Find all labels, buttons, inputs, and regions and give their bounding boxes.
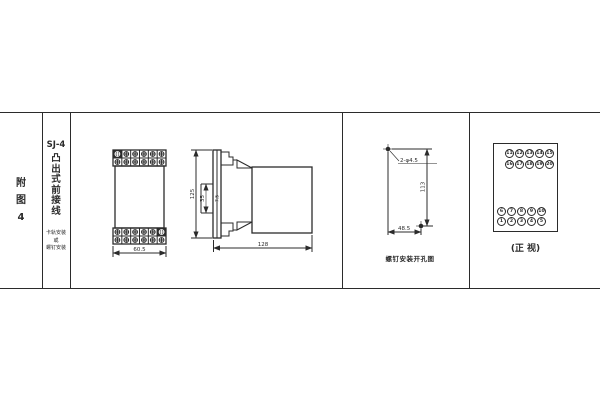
terminal-number: 4 — [527, 217, 536, 226]
side-view-drawing: 125 35 7.5 — [183, 138, 323, 263]
terminal-number: 17 — [515, 160, 524, 169]
side-bottom-tab — [221, 222, 252, 236]
divider-drill-section — [342, 112, 343, 288]
figure-number-char: 4 — [16, 209, 26, 226]
front-bottom-terminal-block — [113, 228, 166, 244]
terminal-row-11-15: 1112131415 — [505, 149, 554, 158]
front-body — [115, 166, 164, 228]
terminal-view-box: 1112131415 1617181920 678910 12345 — [493, 143, 558, 232]
drawing-title-char: 接 — [51, 196, 61, 207]
drill-hole-callout: 2-φ4.5 — [390, 151, 437, 164]
title-cell: SJ-4 凸出式前接线 卡轨安装或螺钉安装 — [42, 112, 70, 288]
drawing-title-char: 线 — [51, 207, 61, 218]
side-body — [252, 167, 312, 233]
front-width-dimension: 60.5 — [113, 246, 166, 257]
drill-horizontal-dimension: 48.5 — [388, 152, 421, 235]
terminal-number: 13 — [525, 149, 534, 158]
svg-text:125: 125 — [190, 188, 196, 199]
terminal-rows-top: 1112131415 1617181920 — [505, 149, 554, 169]
terminal-number: 5 — [537, 217, 546, 226]
terminal-number: 1 — [497, 217, 506, 226]
terminal-number: 12 — [515, 149, 524, 158]
front-top-terminal-block — [113, 150, 166, 166]
terminal-number: 3 — [517, 217, 526, 226]
terminal-number: 20 — [545, 160, 554, 169]
mount-note-line: 或 — [46, 238, 66, 246]
mount-note: 卡轨安装或螺钉安装 — [46, 230, 66, 253]
terminal-number: 7 — [507, 207, 516, 216]
mount-note-line: 卡轨安装 — [46, 230, 66, 238]
terminal-number: 9 — [527, 207, 536, 216]
figure-number: 附图4 — [16, 175, 26, 226]
svg-text:113: 113 — [421, 181, 427, 192]
figure-number-char: 图 — [16, 192, 26, 209]
figure-number-cell: 附图4 — [0, 112, 42, 288]
svg-text:35: 35 — [200, 195, 206, 202]
front-view-drawing: 60.5 — [100, 140, 185, 270]
svg-text:60.5: 60.5 — [133, 247, 146, 253]
terminal-row-1-5: 12345 — [497, 217, 546, 226]
drill-diagram-caption: 螺钉安装开孔图 — [355, 253, 465, 263]
divider-title-column — [70, 112, 71, 288]
terminal-number: 6 — [497, 207, 506, 216]
drawing-title-char: 式 — [51, 175, 61, 186]
frame-bottom-line — [0, 288, 600, 289]
terminal-number: 8 — [517, 207, 526, 216]
terminal-number: 16 — [505, 160, 514, 169]
terminal-row-16-20: 1617181920 — [505, 160, 554, 169]
side-length-dimension: 128 — [214, 235, 313, 252]
drawing-sheet: 附图4 SJ-4 凸出式前接线 卡轨安装或螺钉安装 — [0, 0, 600, 400]
mount-note-line: 螺钉安装 — [46, 245, 66, 253]
frame-top-line — [0, 112, 600, 113]
drill-diagram: 2-φ4.5 113 48.5 — [355, 138, 465, 258]
svg-text:48.5: 48.5 — [398, 226, 411, 232]
terminal-number: 18 — [525, 160, 534, 169]
terminal-number: 10 — [537, 207, 546, 216]
model-label: SJ-4 — [47, 140, 66, 150]
svg-text:7.5: 7.5 — [215, 195, 221, 202]
svg-text:2-φ4.5: 2-φ4.5 — [400, 158, 418, 164]
svg-text:128: 128 — [258, 242, 269, 248]
terminal-number: 19 — [535, 160, 544, 169]
figure-number-char: 附 — [16, 175, 26, 192]
terminal-rows-bottom: 678910 12345 — [497, 207, 546, 227]
drawing-title-char: 凸 — [51, 154, 61, 165]
terminal-number: 14 — [535, 149, 544, 158]
terminal-number: 15 — [545, 149, 554, 158]
divider-terminal-section — [469, 112, 470, 288]
terminal-number: 11 — [505, 149, 514, 158]
terminal-number: 2 — [507, 217, 516, 226]
drawing-title: 凸出式前接线 — [51, 154, 61, 217]
terminal-view-caption: (正 视) — [488, 241, 563, 254]
terminal-row-6-10: 678910 — [497, 207, 546, 216]
side-front-flange — [213, 150, 221, 238]
side-top-tab — [221, 152, 252, 168]
